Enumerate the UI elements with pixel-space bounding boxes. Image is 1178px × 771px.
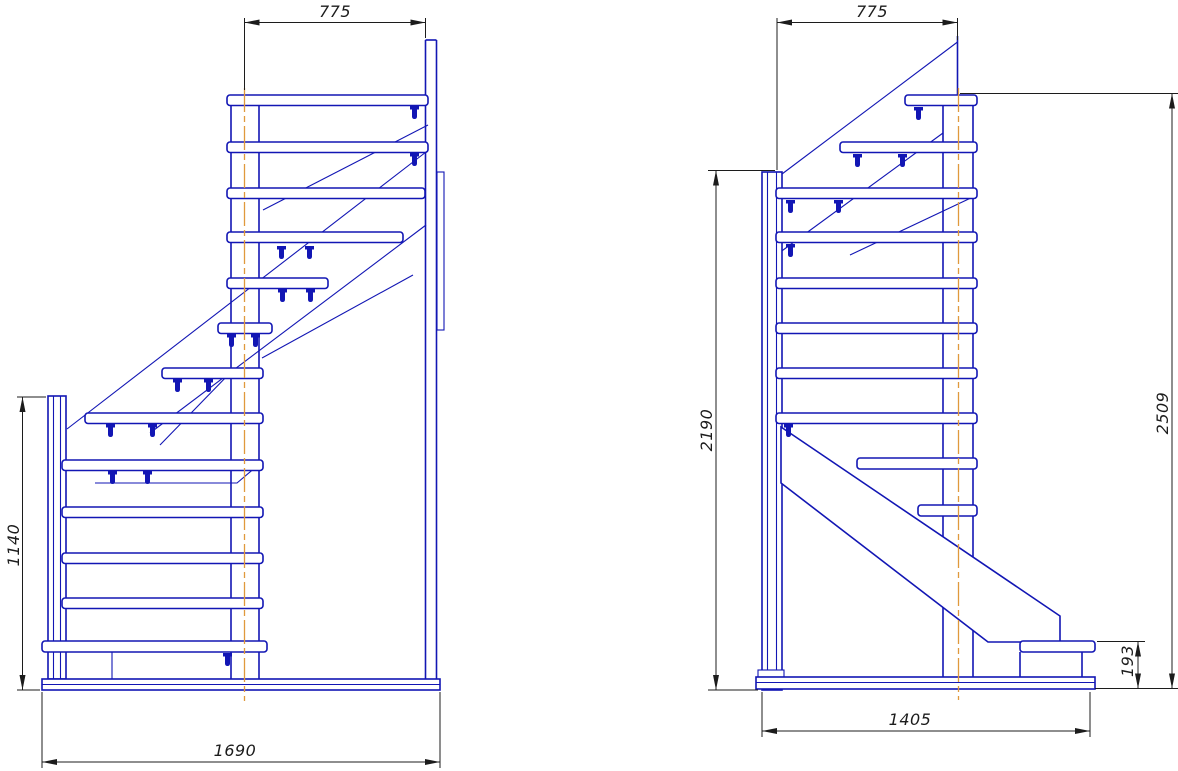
right-view-left-post: [762, 172, 782, 690]
step: [840, 142, 977, 153]
drawing-sheet: 775 1140 1690: [0, 0, 1178, 771]
step: [905, 95, 977, 106]
dim-right-landing-193: 193: [1097, 642, 1145, 689]
left-view-left-post: [48, 396, 66, 679]
step: [776, 323, 977, 334]
step: [85, 413, 263, 424]
bottom-step: [42, 641, 267, 652]
left-view-wall-post: [426, 40, 445, 679]
step: [227, 232, 403, 243]
right-view-landing: [1020, 641, 1095, 677]
dim-text: 1405: [889, 710, 932, 729]
dim-text: 193: [1118, 645, 1137, 677]
dim-text: 2190: [697, 409, 716, 452]
step: [227, 278, 328, 289]
step: [62, 553, 263, 564]
step: [776, 413, 977, 424]
wall-side-bar: [437, 172, 444, 330]
step: [776, 232, 977, 243]
step: [227, 95, 428, 106]
dim-text: 1690: [214, 741, 257, 760]
left-view-steps: [42, 95, 428, 652]
dim-right-bottom-1405: 1405: [762, 692, 1090, 737]
step: [62, 507, 263, 518]
landing-step: [1020, 641, 1095, 652]
railing-diagonal: [782, 42, 958, 174]
dim-text: 775: [856, 2, 888, 21]
step: [776, 278, 977, 289]
step: [62, 460, 263, 471]
dim-text: 2509: [1153, 392, 1172, 435]
right-view-base: [756, 670, 1095, 689]
step: [62, 598, 263, 609]
dim-left-top-775: 775: [245, 2, 426, 90]
dim-left-height-1140: 1140: [4, 397, 46, 690]
step: [776, 368, 977, 379]
staircase-technical-drawing: 775 1140 1690: [0, 0, 1178, 771]
dim-left-bottom-1690: 1690: [42, 692, 440, 768]
left-view-base: [42, 652, 440, 690]
left-view: 775 1140 1690: [4, 2, 444, 768]
dim-text: 1140: [4, 524, 23, 567]
step: [227, 142, 428, 153]
left-view-stringers: [67, 125, 428, 483]
dim-text: 775: [319, 2, 351, 21]
right-view: 775 2190 2509 193 1405: [697, 2, 1178, 737]
step: [227, 188, 425, 199]
step: [162, 368, 263, 379]
step: [776, 188, 977, 199]
step: [918, 505, 977, 516]
